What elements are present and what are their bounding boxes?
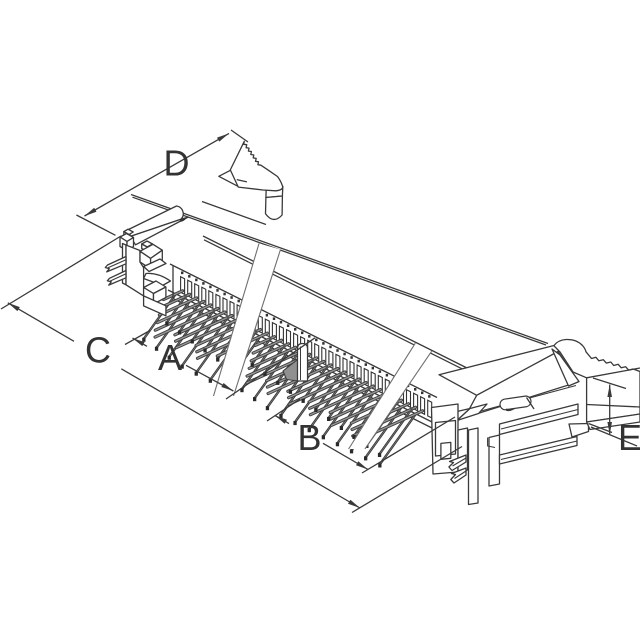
svg-text:B: B xyxy=(298,417,322,458)
svg-text:D: D xyxy=(164,143,190,184)
svg-text:E: E xyxy=(618,417,640,458)
svg-text:A: A xyxy=(158,337,182,378)
svg-text:C: C xyxy=(85,330,111,371)
